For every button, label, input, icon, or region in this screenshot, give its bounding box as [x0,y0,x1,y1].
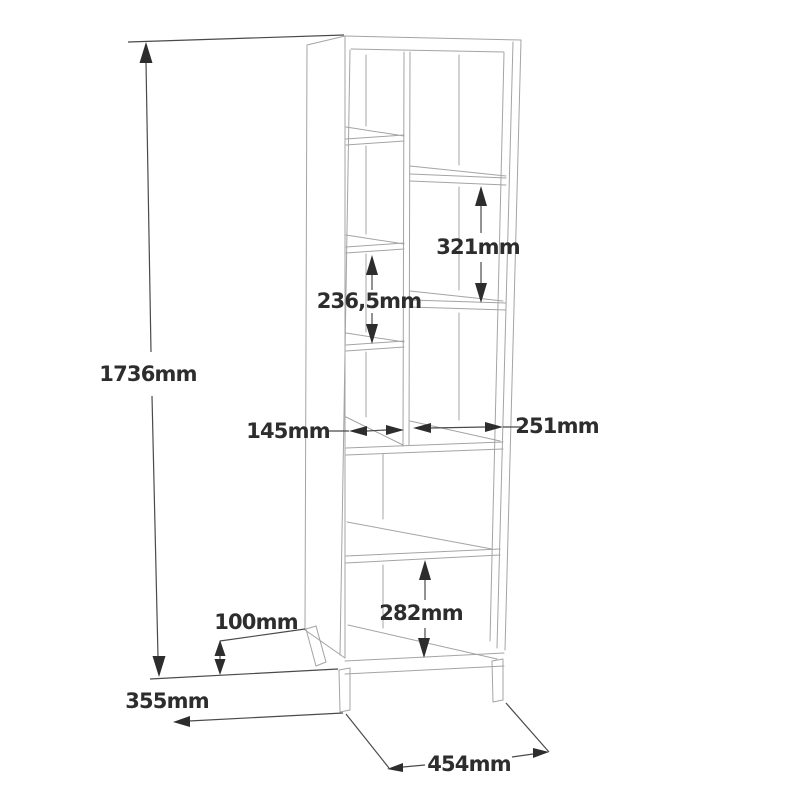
arrowhead-down-left [173,716,190,727]
height-label: 1736mm [99,362,196,386]
dimension-right-shelf-gap: 321mm [436,186,520,303]
shelf-lower-full [346,522,500,563]
arrowhead-down [215,659,226,675]
shelf-left-2 [346,235,404,253]
arrowhead-up [366,255,378,275]
arrowhead-right [386,425,404,435]
back-left-leg [306,626,326,666]
top-panel [345,36,521,52]
left-side-panel [305,36,345,658]
left-column-width-label: 145mm [246,419,330,443]
arrowhead-down [418,638,430,658]
right-column-width-label: 251mm [515,414,599,438]
dimension-leg-height: 100mm [214,610,305,675]
width-label: 454mm [427,752,511,776]
arrowhead-up [215,640,226,656]
right-side-edges [490,40,521,650]
dimension-right-column-width: 251mm [413,414,599,438]
right-width-dim-line [431,427,522,428]
shelf-middle-full [346,417,503,455]
front-left-leg [339,668,350,712]
drawing-canvas: 1736mm 321mm 236,5mm 145mm 2 [0,0,800,800]
shelf-left-3 [346,333,404,351]
dimension-depth: 355mm [125,689,343,727]
front-right-leg [492,659,503,702]
dimension-drawing: 1736mm 321mm 236,5mm 145mm 2 [0,0,800,800]
height-extension-lines [128,35,344,679]
arrowhead-up [419,560,431,580]
dimension-left-shelf-gap: 236,5mm [317,255,422,344]
leg-height-label: 100mm [214,610,298,634]
arrowhead-right [485,422,503,432]
arrowhead-down [475,283,487,303]
arrowhead-down [366,324,378,344]
dimension-height: 1736mm [99,35,344,679]
arrowhead-left [349,426,367,436]
dimension-width: 454mm [346,703,549,776]
arrowhead-up [475,186,487,206]
shelf-right-1 [410,166,506,185]
dimension-left-column-width: 145mm [246,419,404,443]
arrowhead-left [387,763,403,772]
shelf-left-1 [346,127,404,145]
depth-dim-line [189,713,343,721]
left-shelf-gap-label: 236,5mm [317,289,422,313]
interior-back-edges [366,55,459,628]
dimension-bottom-shelf-gap: 282mm [379,560,463,658]
height-dim-line [146,62,158,657]
arrowhead-down [153,656,166,677]
arrowhead-left [413,423,431,433]
shelf-right-2 [410,291,506,310]
right-shelf-gap-label: 321mm [436,235,520,259]
depth-label: 355mm [125,689,209,713]
arrowhead-up [140,42,153,63]
bottom-shelf-gap-label: 282mm [379,601,463,625]
